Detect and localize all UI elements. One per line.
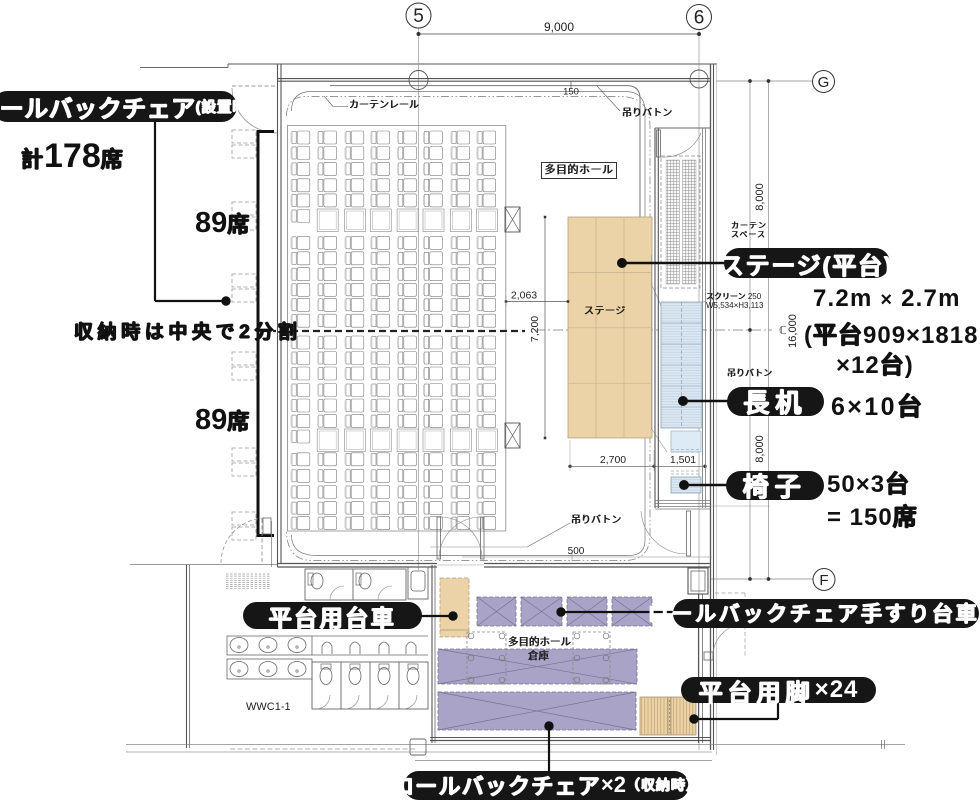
svg-text:150: 150 [563, 87, 579, 98]
svg-text:2,700: 2,700 [600, 454, 626, 466]
svg-text:8,000: 8,000 [754, 183, 766, 211]
svg-text:6: 6 [694, 8, 705, 29]
svg-text:9,000: 9,000 [544, 20, 574, 34]
svg-text:F: F [819, 572, 828, 589]
svg-text:16,000: 16,000 [787, 314, 799, 348]
svg-text:5: 5 [413, 6, 424, 27]
svg-text:1,501: 1,501 [670, 454, 696, 466]
svg-text:G: G [818, 74, 830, 91]
svg-text:7,200: 7,200 [529, 316, 541, 342]
svg-text:8,000: 8,000 [754, 435, 766, 463]
svg-text:ℂ: ℂ [779, 325, 787, 337]
svg-text:500: 500 [568, 546, 585, 557]
svg-text:2,063: 2,063 [511, 290, 537, 302]
